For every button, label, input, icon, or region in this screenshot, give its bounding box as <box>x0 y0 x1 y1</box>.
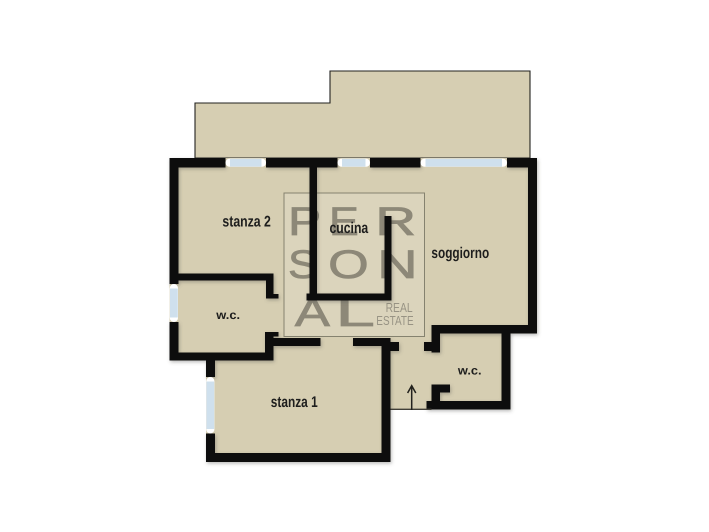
svg-text:N: N <box>377 243 417 287</box>
svg-text:soggiorno: soggiorno <box>431 245 489 262</box>
svg-text:cucina: cucina <box>330 220 369 237</box>
svg-text:w.c.: w.c. <box>215 308 240 322</box>
svg-text:R: R <box>375 200 416 244</box>
svg-text:stanza 2: stanza 2 <box>222 214 271 231</box>
svg-text:ESTATE: ESTATE <box>376 313 414 328</box>
svg-text:stanza 1: stanza 1 <box>271 394 318 411</box>
svg-text:w.c.: w.c. <box>457 363 482 377</box>
svg-text:O: O <box>328 243 369 287</box>
